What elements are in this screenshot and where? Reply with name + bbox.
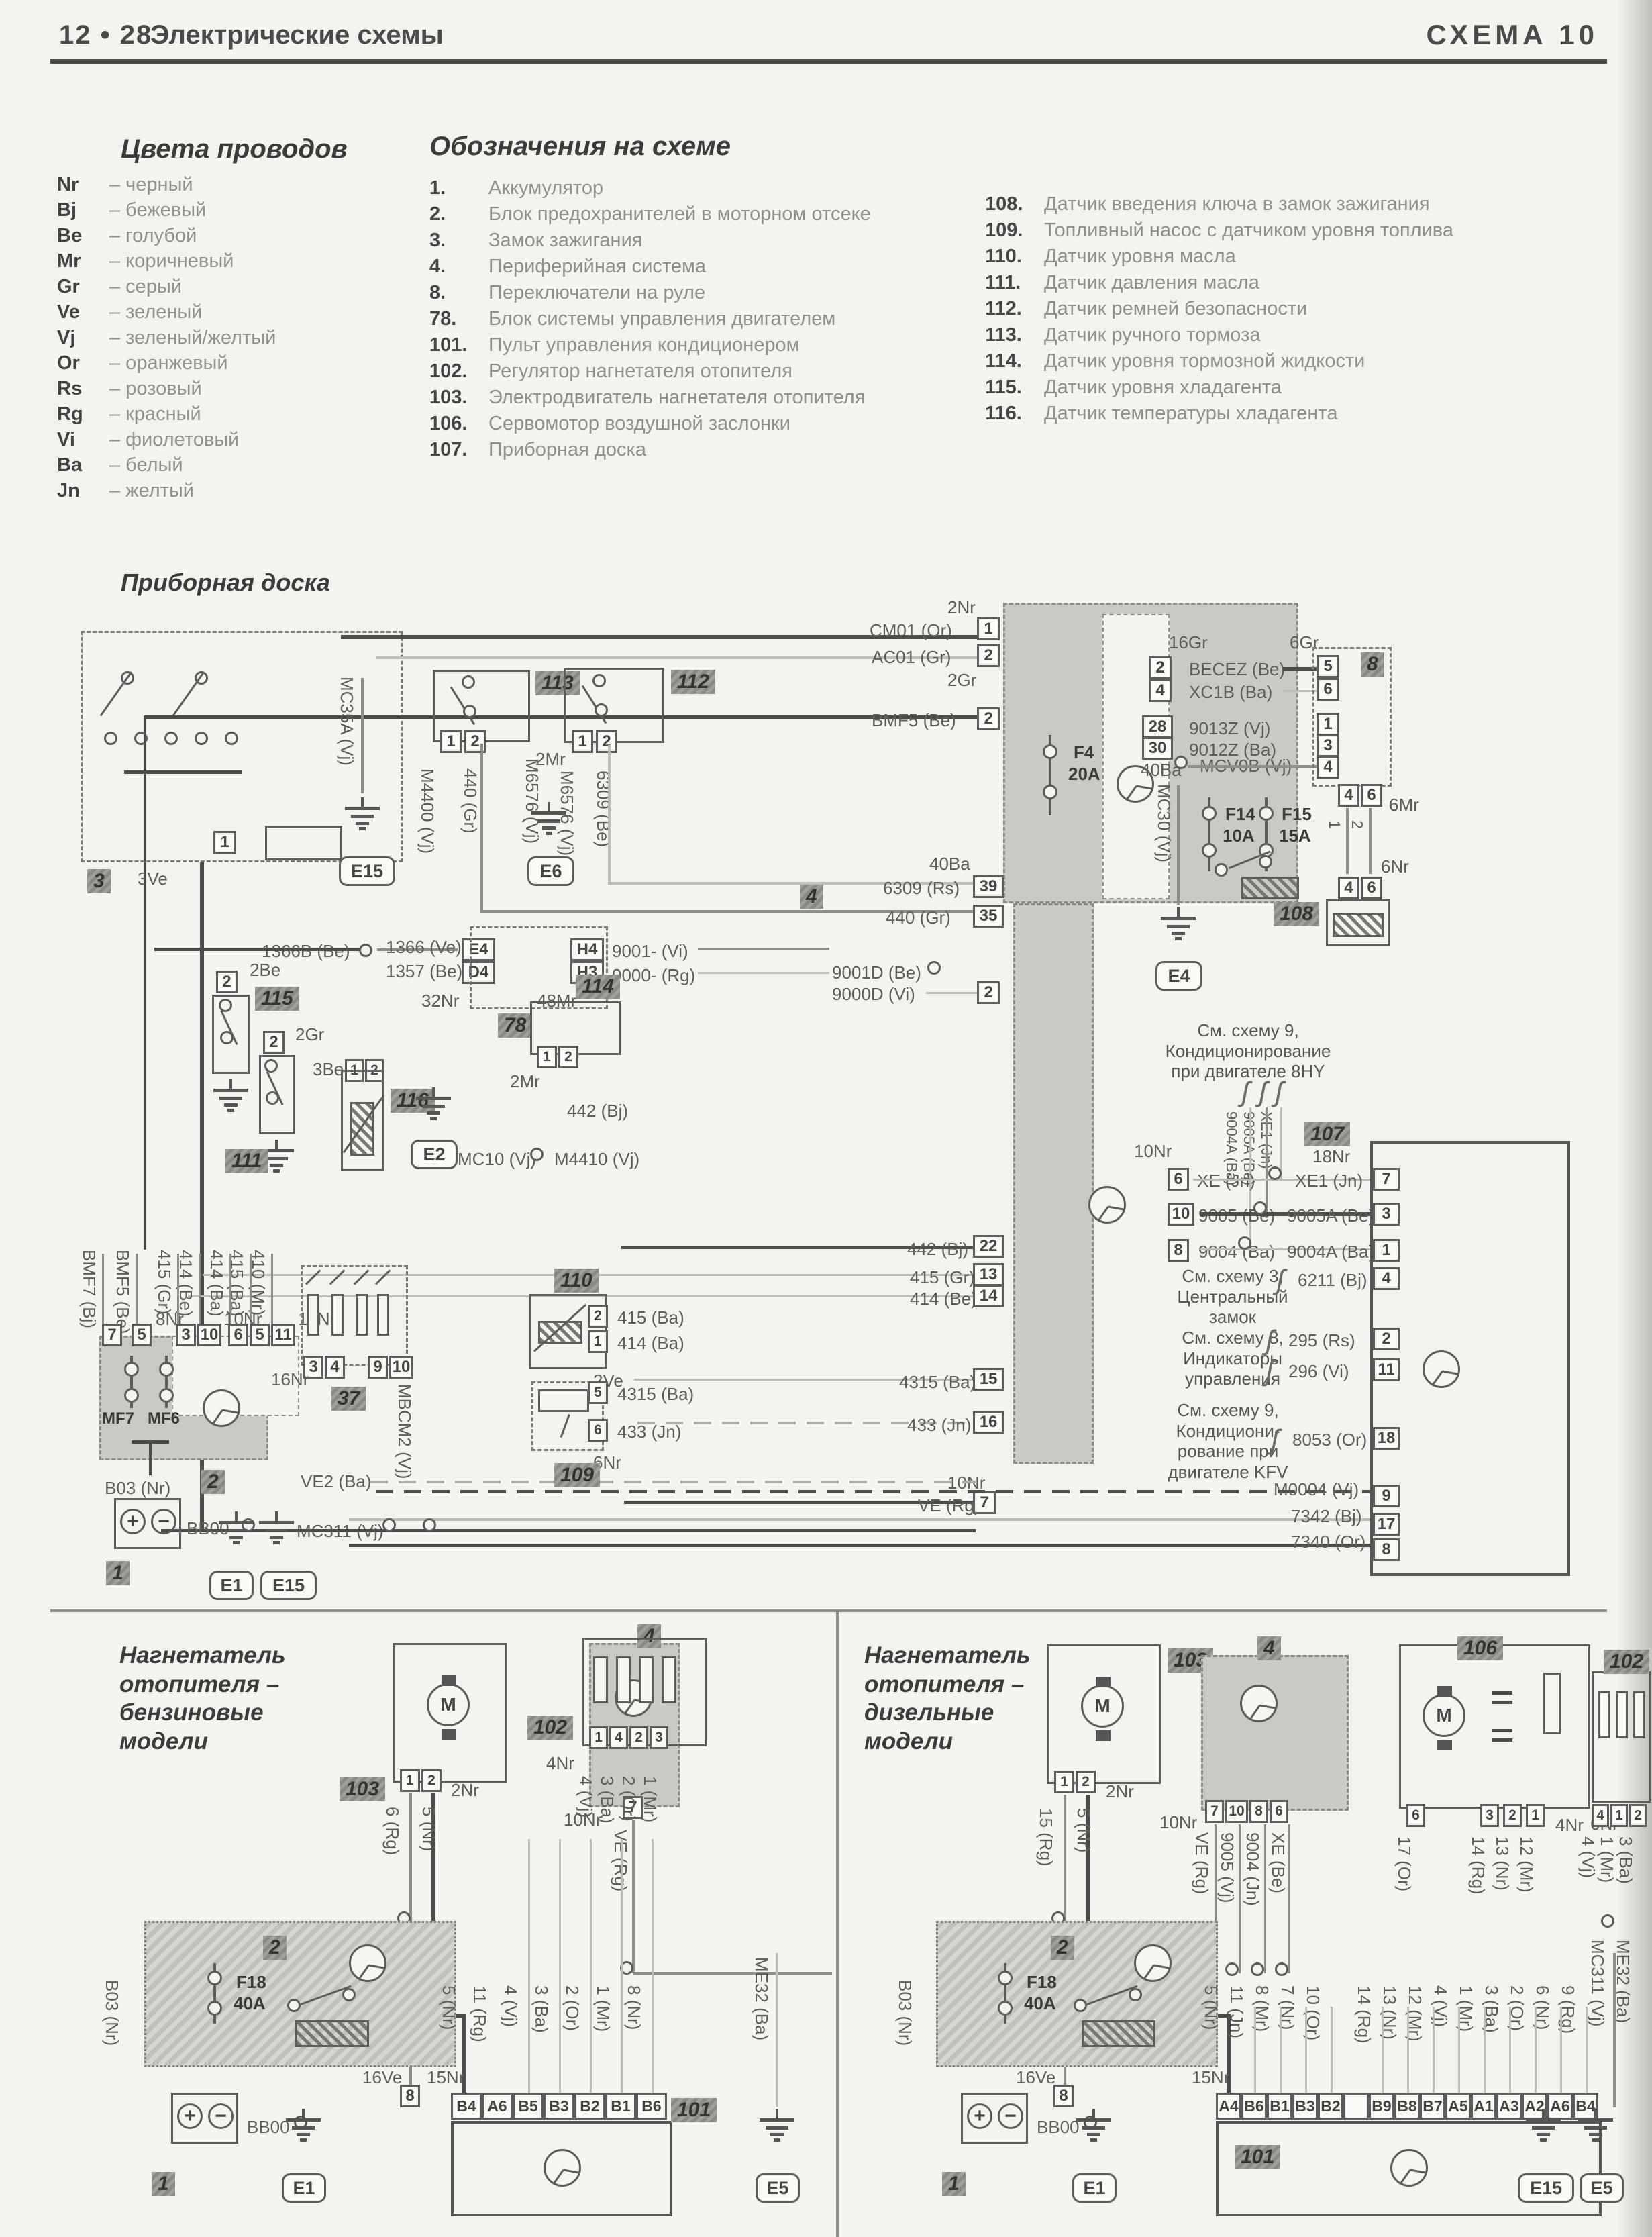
- wire-label: 15Nr: [1192, 2069, 1229, 2086]
- wire: [1331, 2007, 1333, 2093]
- clock-icon: [1423, 1350, 1460, 1388]
- junction-dot: [927, 961, 941, 975]
- ground-connector-label: E15: [260, 1571, 317, 1600]
- wire-label: 40A: [234, 1995, 266, 2012]
- wire-label: BB00: [1037, 2118, 1080, 2136]
- resistor-element: [1241, 877, 1299, 899]
- break-squiggle: ʃ: [1275, 1078, 1283, 1106]
- resistor-outline: [1633, 1691, 1645, 1738]
- junction-dot: [104, 732, 117, 745]
- wire-label: B03 (Nr): [896, 1980, 914, 2046]
- wire-label: 40Ba: [929, 855, 970, 873]
- wire-label: 9004 (Jn): [1244, 1832, 1261, 1906]
- wire-label: F18: [1027, 1973, 1057, 1991]
- wire-label: 442 (Bj): [907, 1240, 968, 1258]
- connector-strip: B1: [605, 2093, 636, 2120]
- pin-label: 2: [263, 1031, 285, 1054]
- component-number-tag: 2: [263, 1936, 287, 1960]
- wire-label: 6211 (Bj): [1298, 1271, 1367, 1289]
- break-squiggle: ʃ: [1276, 1266, 1284, 1294]
- wire: [652, 1839, 654, 2093]
- wire: [1560, 2007, 1562, 2093]
- ground-connector-label: E15: [339, 856, 395, 886]
- pin-label: 35: [973, 905, 1004, 928]
- wire-label: VE (Rg): [1193, 1832, 1210, 1894]
- junction-dot: [220, 1031, 234, 1044]
- wire: [1254, 2007, 1256, 2093]
- resistor-outline: [1598, 1691, 1610, 1738]
- junction-dot: [164, 732, 178, 745]
- pin-label: 1: [572, 730, 593, 753]
- wire-label: XE (Jn): [1197, 1172, 1255, 1189]
- wire: [698, 948, 829, 950]
- ground-symbol: [760, 2109, 794, 2152]
- component-number-tag: 106: [1457, 1636, 1503, 1660]
- pin-label: 7: [102, 1324, 122, 1346]
- resistor-outline: [616, 1656, 631, 1703]
- break-squiggle: ʃ: [1266, 1357, 1274, 1385]
- wire-label: 2: [1349, 820, 1365, 829]
- wire-label: 20A: [1068, 765, 1100, 783]
- pin-label: 4: [1338, 877, 1359, 899]
- wire-label: 415 (Ba): [617, 1309, 684, 1326]
- wire-label: 2Nr: [947, 599, 976, 616]
- wire: [271, 1254, 273, 1334]
- wire-label: 8053 (Or): [1292, 1431, 1367, 1448]
- pin-label: H4: [570, 938, 604, 961]
- battery-symbol: +−: [114, 1498, 181, 1549]
- wire: [136, 1254, 138, 1334]
- motor-symbol: M: [427, 1683, 470, 1726]
- wire-label: 9000D (Vi): [832, 985, 915, 1003]
- resistor-element: [1333, 913, 1384, 937]
- wire-label: 3 (Ba): [533, 1985, 550, 2033]
- connector-strip: B6: [636, 2093, 667, 2120]
- wire: [1433, 2007, 1435, 2093]
- wire-label: F14: [1225, 805, 1255, 823]
- wire-label: 7342 (Bj): [1291, 1507, 1362, 1525]
- wire-label: 295 (Rs): [1288, 1332, 1355, 1349]
- wire-label: 1357 (Be): [386, 962, 462, 980]
- pin-label: 10: [1168, 1203, 1194, 1226]
- component-box: [1013, 903, 1094, 1464]
- wire: [633, 1972, 832, 1975]
- wire: [1283, 667, 1317, 671]
- wire: [698, 972, 829, 974]
- pin-label: 6: [1406, 1804, 1425, 1827]
- wire-label: F4: [1074, 744, 1094, 761]
- wire-label: F18: [236, 1973, 266, 1991]
- wire: [480, 744, 483, 911]
- connector-strip: A5: [1445, 2093, 1471, 2120]
- wire-label: 15A: [1279, 827, 1311, 844]
- wire: [370, 1481, 976, 1483]
- pin-label: 1: [400, 1769, 420, 1792]
- wire: [836, 1612, 839, 2237]
- wire: [1283, 690, 1317, 692]
- wire: [926, 992, 977, 994]
- ground-symbol: [213, 1079, 248, 1122]
- wire-label: XE (Be): [1270, 1832, 1287, 1893]
- pin-label: 2: [596, 730, 617, 753]
- clock-icon: [349, 1944, 386, 1982]
- pin-label: 2: [216, 971, 238, 993]
- wire-label: 5 (Nr): [1075, 1808, 1092, 1852]
- wire-label: 414 (Be): [177, 1250, 195, 1317]
- component-number-tag: 107: [1304, 1122, 1350, 1146]
- wire-label: 415 (Gr): [156, 1250, 173, 1315]
- component-number-tag: 3: [87, 869, 111, 893]
- component-number-tag: 4: [800, 885, 823, 909]
- wire-label: F15: [1282, 805, 1312, 823]
- wire: [528, 1839, 530, 2093]
- wire-label: 2Be: [250, 961, 280, 979]
- reference-note: См. схему 3, Центральный замок: [1149, 1266, 1317, 1328]
- pin-label: 4: [1592, 1804, 1609, 1827]
- wire: [1492, 1738, 1512, 1742]
- wire-label: 410 (Mr): [250, 1250, 267, 1315]
- fuse-symbol: [998, 1963, 1013, 2024]
- wire-label: MC311 (Vj): [1589, 1940, 1606, 2027]
- wire: [776, 1953, 778, 2107]
- wire-label: 4 (Vj): [577, 1776, 595, 1818]
- wire-label: 433 (Jn): [617, 1423, 681, 1440]
- component-number-tag: 114: [576, 975, 620, 999]
- wire-label: MF7: [102, 1411, 134, 1427]
- wire-label: 1 (Mr): [595, 1985, 612, 2032]
- pin-label: 3: [176, 1324, 196, 1346]
- wire-label: 440 (Gr): [886, 909, 951, 926]
- wire: [1407, 2007, 1409, 2093]
- wire-label: 6 (Rg): [384, 1807, 401, 1855]
- wire-label: 1 (Mr): [1598, 1836, 1616, 1883]
- wire: [1188, 765, 1317, 768]
- wire-label: 4315 (Ba): [617, 1385, 694, 1403]
- pin-label: 6: [588, 1419, 608, 1442]
- component-number-tag: 112: [671, 670, 715, 694]
- wire-label: 9013Z (Vj): [1189, 719, 1270, 737]
- component-number-tag: 101: [671, 2098, 717, 2122]
- wire-label: 4315 (Ba): [899, 1373, 976, 1391]
- pin-label: 2: [588, 1305, 608, 1328]
- pin-label: 6: [1270, 1800, 1288, 1823]
- ground-symbol: [1161, 907, 1196, 950]
- pin-label: 9: [1373, 1485, 1400, 1507]
- junction-dot: [423, 1518, 436, 1532]
- junction-dot: [1238, 1236, 1251, 1250]
- wire: [1177, 785, 1180, 905]
- pin-label: 30: [1142, 737, 1173, 760]
- resistor-outline: [593, 1656, 608, 1703]
- ground-connector-label: E1: [282, 2173, 326, 2203]
- pin-label: 2: [558, 1046, 578, 1068]
- wire: [349, 1518, 1370, 1521]
- wire-label: 442 (Bj): [567, 1102, 628, 1120]
- pin-label: 5: [132, 1324, 152, 1346]
- pin-label: 6: [1168, 1168, 1189, 1191]
- wire-label: M6576 (Vj): [558, 770, 576, 856]
- pin-label: 10: [197, 1324, 221, 1346]
- pin-label: 6: [1361, 877, 1382, 899]
- connector-strip: A6: [482, 2093, 513, 2120]
- wire-label: 5 (Nr): [420, 1807, 437, 1851]
- connector-strip: A3: [1496, 2093, 1522, 2120]
- wire-label: 1: [1327, 820, 1342, 829]
- connector-strip: B1: [1267, 2093, 1292, 2120]
- wire-label: 11 (Rg): [471, 1985, 488, 2042]
- component-number-tag: 78: [498, 1013, 532, 1038]
- wire-label: 5 (Nr): [440, 1985, 458, 2030]
- wire: [1264, 1824, 1266, 1973]
- wire-label: M0004 (Vj): [1274, 1481, 1359, 1498]
- component-number-tag: 111: [225, 1149, 268, 1173]
- wire-label: ME32 (Ba): [1614, 1940, 1632, 2023]
- wire-label: 296 (Vi): [1288, 1362, 1349, 1380]
- wire-label: 5 (Nr): [1202, 1985, 1220, 2030]
- pin-label: 1: [977, 617, 1000, 640]
- junction-dot: [219, 999, 232, 1012]
- connector-strip: B7: [1420, 2093, 1445, 2120]
- component-number-tag: 37: [331, 1387, 366, 1411]
- wire: [199, 1254, 201, 1334]
- junction-dot: [462, 675, 475, 689]
- pin-label: 1: [1054, 1771, 1074, 1793]
- wire-label: 13 (Nr): [1494, 1836, 1511, 1891]
- connector-strip: A1: [1471, 2093, 1496, 2120]
- pin-label: 18: [1373, 1427, 1400, 1450]
- resistor-outline: [639, 1656, 654, 1703]
- junction-dot: [595, 703, 608, 717]
- wire: [154, 948, 362, 951]
- wire-label: 8 (Nr): [625, 1985, 643, 2030]
- wire-label: MBCM2 (Vj): [396, 1384, 413, 1479]
- wire-label: 9004 (Ba): [1198, 1243, 1275, 1260]
- wire: [50, 1609, 1607, 1612]
- junction-dot: [530, 1148, 544, 1161]
- pin-label: 8: [1249, 1800, 1268, 1823]
- fuse-symbol: [1043, 735, 1057, 815]
- ground-symbol: [1076, 2109, 1111, 2152]
- component-number-tag: 108: [1274, 902, 1319, 926]
- wire-label: 2 (Or): [564, 1985, 581, 2031]
- pin-label: 4: [1338, 784, 1359, 807]
- ground-symbol: [259, 1511, 294, 1554]
- wire-label: VE2 (Ba): [301, 1473, 372, 1490]
- battery-symbol: +−: [961, 2093, 1028, 2144]
- connector-strip: B5: [513, 2093, 544, 2120]
- wire: [1369, 808, 1372, 874]
- junction-dot: [382, 1518, 396, 1532]
- pin-label: 2: [1629, 1804, 1647, 1827]
- pin-label: 4: [1373, 1267, 1400, 1290]
- component-number-tag: 1: [106, 1561, 130, 1585]
- pin-label: 2: [977, 644, 1000, 667]
- junction-dot: [1174, 756, 1188, 769]
- break-squiggle: ʃ: [1266, 1326, 1274, 1354]
- wire-label: BMF7 (Bj): [81, 1250, 98, 1328]
- connector-strip: B2: [1318, 2093, 1343, 2120]
- pin-label: 2: [421, 1769, 442, 1792]
- wire: [621, 1839, 623, 2093]
- pin-label: 2: [977, 981, 1000, 1004]
- ground-symbol: [286, 2109, 321, 2152]
- junction-dot: [359, 944, 372, 957]
- wire-label: ME32 (Ba): [753, 1957, 770, 2040]
- wire-label: 6Mr: [1389, 796, 1419, 813]
- pin-label: 39: [973, 875, 1004, 898]
- wire-label: XC1B (Ba): [1189, 683, 1272, 701]
- resistor-outline: [538, 1389, 589, 1412]
- resistor-element: [350, 1102, 374, 1156]
- junction-dot: [1074, 1999, 1087, 2012]
- wire: [1458, 2007, 1460, 2093]
- wire-label: 6Nr: [1381, 858, 1409, 875]
- wire-label: BMF5 (Be): [872, 711, 956, 729]
- ground-connector-label: E1: [209, 1571, 254, 1600]
- wire-label: 3 (Ba): [1617, 1836, 1635, 1884]
- pin-label: 4: [325, 1356, 345, 1379]
- resistor-outline: [1616, 1691, 1628, 1738]
- pin-label: 2: [629, 1726, 648, 1749]
- wire: [124, 770, 242, 774]
- pin-label: 28: [1142, 715, 1173, 738]
- junction-dot: [1268, 1166, 1282, 1180]
- reference-note: См. схему 9, Кондициони- рование при дви…: [1141, 1400, 1315, 1483]
- wire-label: MC10 (Vj): [458, 1150, 536, 1168]
- ground-connector-label: E6: [527, 856, 574, 886]
- wire: [1266, 1107, 1268, 1218]
- wire-label: BMF5 (Be): [114, 1250, 132, 1334]
- wire-label: 1366 (Ve): [386, 938, 462, 956]
- junction-dot: [592, 674, 606, 687]
- component-number-tag: 4: [1257, 1636, 1281, 1660]
- pin-label: 6: [1361, 784, 1382, 807]
- wire: [349, 1544, 1370, 1547]
- wire-label: 16Gr: [1169, 634, 1208, 651]
- ground-connector-label: E5: [1580, 2173, 1624, 2203]
- wire: [632, 1820, 635, 1973]
- motor-symbol: M: [1423, 1694, 1465, 1737]
- wire: [1382, 2007, 1384, 2093]
- wire-label: BB00: [247, 2118, 290, 2136]
- wire: [1613, 1953, 1616, 2107]
- wire-label: VE (Rg): [918, 1497, 980, 1514]
- junction-dot: [264, 1059, 278, 1073]
- wire: [1239, 1824, 1241, 1973]
- junction-dot: [1253, 1201, 1267, 1215]
- component-number-tag: 101: [1235, 2145, 1280, 2169]
- wire-label: MF6: [148, 1411, 180, 1427]
- wire-label: 14 (Rg): [1355, 1985, 1373, 2044]
- wire-label: 9004A (Ba): [1287, 1243, 1374, 1260]
- wire-label: 9000- (Rg): [612, 966, 695, 984]
- fuse-symbol: [1202, 797, 1217, 871]
- component-number-tag: 1: [152, 2172, 175, 2196]
- wire-label: 9001- (Vi): [612, 942, 688, 960]
- resistor-outline: [1543, 1673, 1561, 1734]
- ground-symbol: [1526, 2109, 1561, 2152]
- wire: [1484, 2007, 1486, 2093]
- break-squiggle: ʃ: [1259, 1078, 1267, 1106]
- pin-label: 22: [973, 1235, 1004, 1258]
- pin-label: 2: [1076, 1771, 1096, 1793]
- battery-symbol: +−: [171, 2093, 238, 2144]
- component-box: [265, 826, 342, 860]
- break-squiggle: ʃ: [1241, 1078, 1249, 1106]
- wire: [608, 745, 611, 883]
- wire-label: M4400 (Vj): [419, 768, 436, 854]
- wire-label: MC30 (Vj): [1155, 784, 1173, 862]
- wire-label: 12 (Mr): [1518, 1836, 1535, 1893]
- wire-label: 414 (Ba): [208, 1250, 225, 1317]
- pin-label: 10: [389, 1356, 413, 1379]
- component-number-tag: 1: [942, 2172, 966, 2196]
- motor-symbol: M: [1081, 1685, 1124, 1728]
- wire: [1280, 2007, 1282, 2093]
- clock-icon: [1088, 1186, 1126, 1224]
- wire-label: 15Nr: [427, 2069, 464, 2086]
- wire-label: 3Be: [313, 1060, 344, 1078]
- pin-label: 4: [609, 1726, 628, 1749]
- junction-dot: [1275, 1962, 1288, 1976]
- wire: [1492, 1729, 1512, 1732]
- junction-dot: [1215, 863, 1228, 877]
- wire-label: 10A: [1223, 827, 1255, 844]
- wire-label: 3 (Ba): [599, 1776, 616, 1824]
- junction-dot: [1259, 855, 1272, 868]
- pin-label: 8: [1053, 2085, 1074, 2107]
- pin-label: 7: [1205, 1800, 1224, 1823]
- wire: [376, 1490, 1370, 1493]
- connector-strip: B9: [1369, 2093, 1394, 2120]
- pin-label: 17: [1373, 1513, 1400, 1536]
- break-squiggle: ʃ: [1271, 1426, 1279, 1454]
- wire-label: 17 (Or): [1396, 1836, 1413, 1891]
- wire-label: 2Nr: [451, 1781, 479, 1799]
- wire-label: MC35A (Vj): [338, 677, 356, 766]
- wire-label: 16Ve: [362, 2069, 402, 2086]
- pin-label: 10: [1225, 1800, 1248, 1823]
- wire-label: 10Nr: [1159, 1813, 1197, 1831]
- wire-label: 414 (Ba): [617, 1334, 684, 1352]
- wire-label: 7340 (Or): [1291, 1533, 1365, 1550]
- component-number-tag: 102: [527, 1716, 573, 1740]
- pin-label: 5: [588, 1381, 608, 1404]
- component-number-tag: 110: [554, 1269, 599, 1293]
- wire-label: 9005A (Be): [1287, 1207, 1374, 1224]
- pin-label: 13: [973, 1263, 1004, 1286]
- pin-label: 6: [228, 1324, 248, 1346]
- wire-label: 9001D (Be): [832, 964, 921, 981]
- reference-note: См. схему 9, Кондиционирование при двига…: [1134, 1020, 1362, 1082]
- wire-label: 10Nr: [1134, 1142, 1172, 1160]
- wire-label: 414 (Be): [910, 1290, 977, 1307]
- wire-label: 4 (Vj): [502, 1985, 519, 2027]
- wire: [144, 715, 978, 719]
- wire: [590, 1839, 592, 2093]
- ground-connector-label: E4: [1155, 961, 1202, 991]
- wiring-diagram: 133Ve113122MrM4400 (Vj)440 (Gr)MC35A (Vj…: [0, 0, 1652, 2237]
- wire-label: 1 (Mr): [641, 1776, 659, 1822]
- connector-strip: B3: [544, 2093, 574, 2120]
- junction-dot: [225, 732, 238, 745]
- wire: [1288, 1824, 1290, 1973]
- ground-connector-label: E1: [1072, 2173, 1117, 2203]
- component-number-tag: 8: [1361, 652, 1384, 677]
- wire-label: 2Nr: [1106, 1783, 1134, 1800]
- wire-label: 11 (Jn): [1228, 1985, 1245, 2038]
- wire: [1492, 1701, 1512, 1704]
